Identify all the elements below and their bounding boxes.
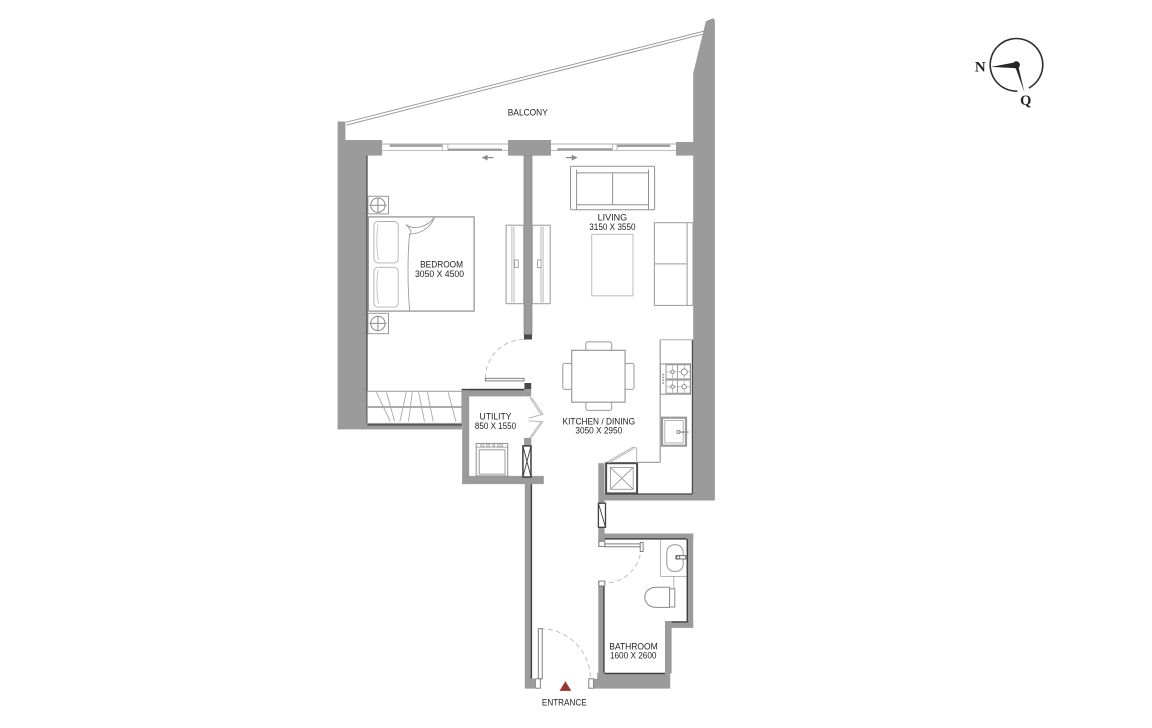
svg-text:1600 X 2600: 1600 X 2600: [610, 650, 657, 660]
svg-text:3050 X 4500: 3050 X 4500: [415, 269, 464, 279]
svg-text:3050 X 2950: 3050 X 2950: [575, 425, 622, 435]
svg-text:BALCONY: BALCONY: [508, 107, 548, 117]
svg-text:850 X 1550: 850 X 1550: [475, 421, 516, 431]
svg-text:N: N: [975, 60, 986, 76]
svg-text:ENTRANCE: ENTRANCE: [542, 697, 587, 707]
svg-text:3150 X 3550: 3150 X 3550: [589, 222, 635, 232]
svg-text:Q: Q: [1020, 93, 1032, 109]
